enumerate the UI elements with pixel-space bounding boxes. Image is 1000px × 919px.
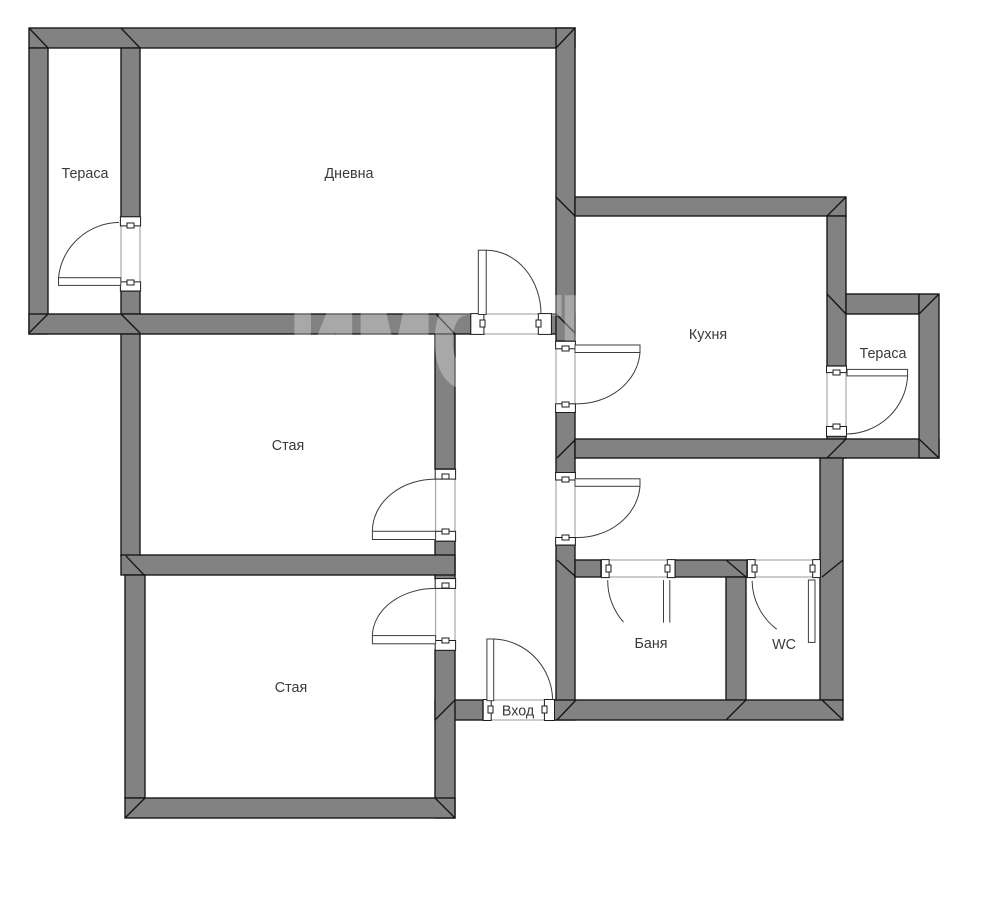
svg-text:Дневна: Дневна bbox=[325, 166, 374, 182]
svg-text:Вход: Вход bbox=[502, 704, 535, 720]
svg-text:Стая: Стая bbox=[275, 680, 307, 696]
svg-text:Кухня: Кухня bbox=[689, 327, 727, 343]
svg-text:Стая: Стая bbox=[272, 438, 304, 454]
svg-text:Тераса: Тераса bbox=[860, 346, 907, 362]
svg-text:Тераса: Тераса bbox=[62, 166, 109, 182]
svg-text:Баня: Баня bbox=[635, 636, 668, 652]
svg-text:ИМОТИ: ИМОТИ bbox=[291, 273, 628, 413]
svg-text:WC: WC bbox=[772, 637, 796, 653]
